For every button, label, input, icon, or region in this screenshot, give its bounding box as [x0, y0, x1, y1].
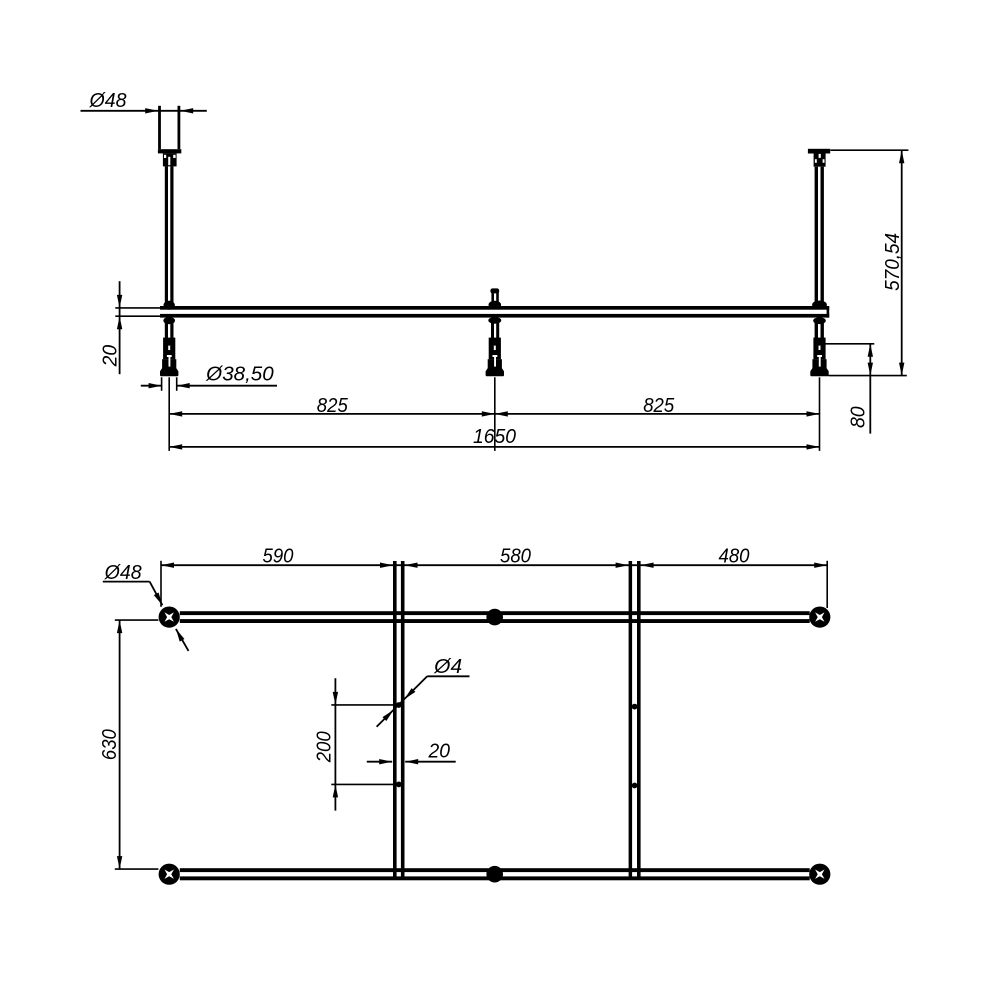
svg-text:1650: 1650	[473, 425, 517, 448]
svg-text:825: 825	[643, 394, 675, 417]
svg-text:630: 630	[98, 729, 121, 761]
svg-text:590: 590	[263, 544, 295, 567]
svg-text:200: 200	[313, 731, 336, 763]
svg-text:Ø48: Ø48	[89, 89, 128, 112]
svg-text:20: 20	[428, 740, 451, 763]
svg-text:Ø4: Ø4	[433, 655, 462, 678]
svg-text:580: 580	[500, 544, 532, 567]
svg-text:570,54: 570,54	[881, 233, 904, 291]
svg-text:20: 20	[98, 344, 121, 367]
svg-text:80: 80	[847, 406, 870, 428]
svg-text:480: 480	[719, 544, 751, 567]
svg-text:825: 825	[317, 394, 349, 417]
svg-text:Ø38,50: Ø38,50	[205, 362, 274, 385]
svg-text:Ø48: Ø48	[104, 561, 143, 584]
